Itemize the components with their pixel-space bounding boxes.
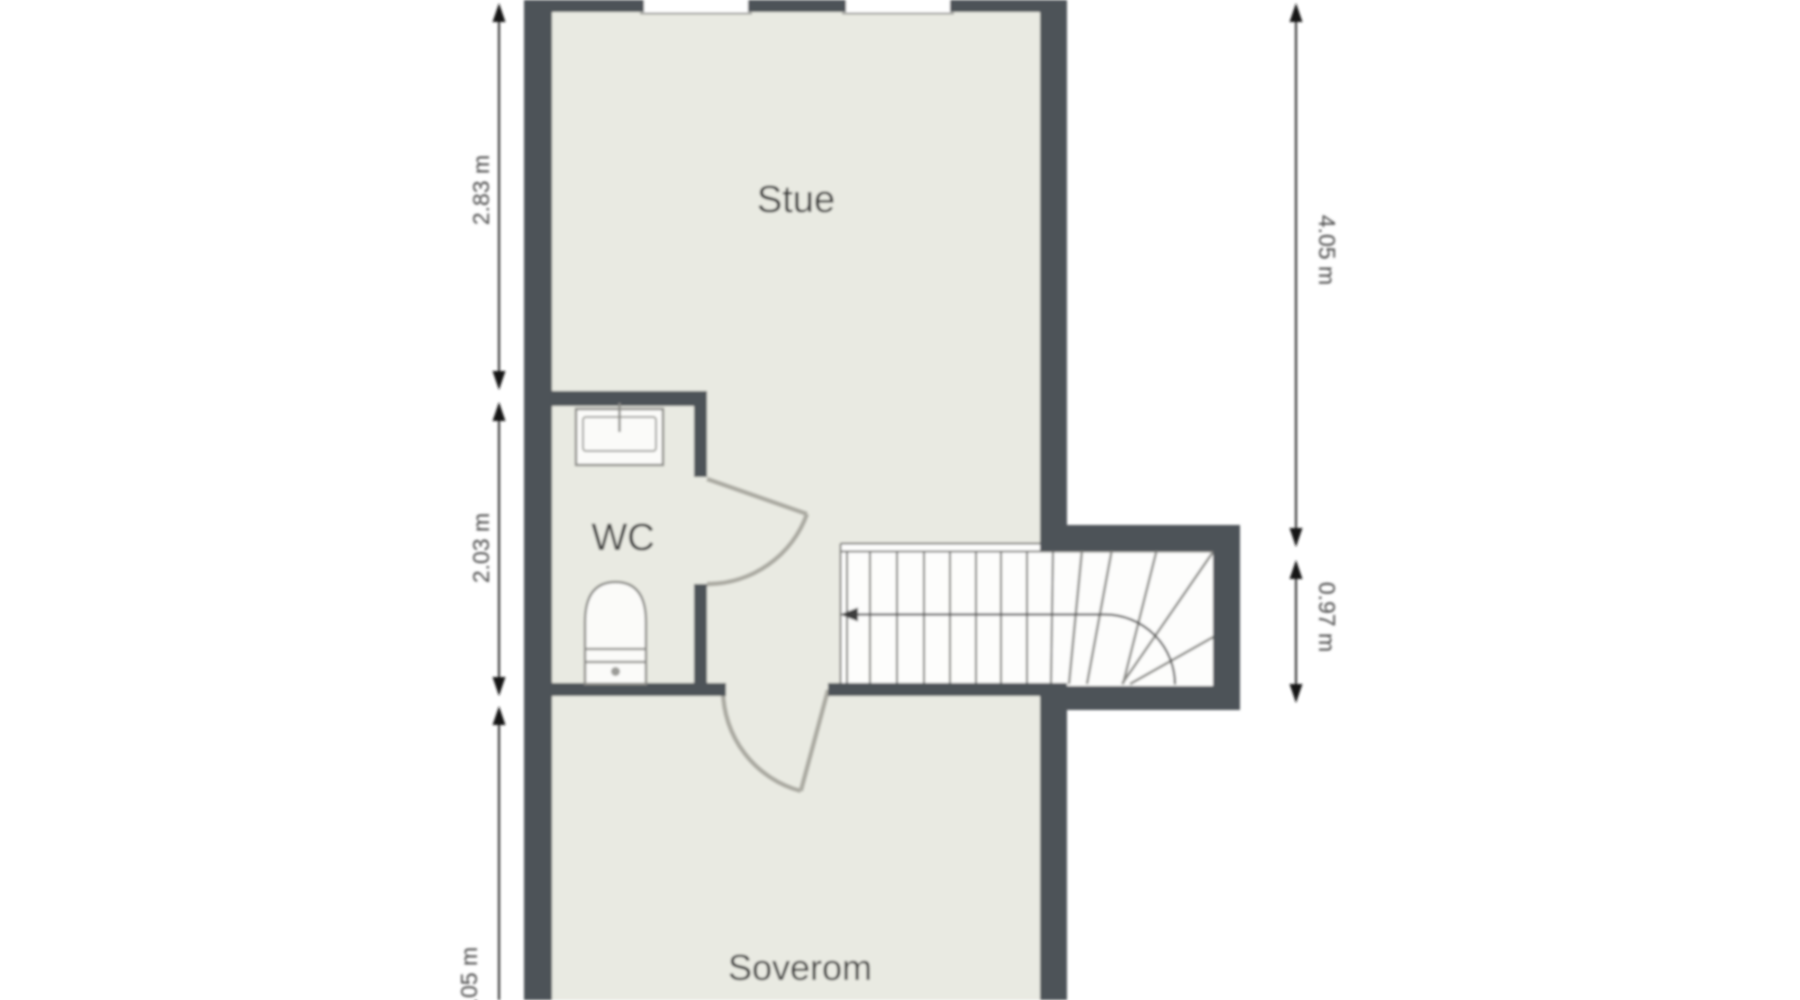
svg-text:3.05 m: 3.05 m [456, 947, 482, 1000]
svg-text:0.97 m: 0.97 m [1314, 582, 1340, 652]
svg-text:WC: WC [591, 517, 654, 559]
svg-text:Soverom: Soverom [728, 947, 872, 988]
svg-text:4.05 m: 4.05 m [1314, 215, 1340, 285]
svg-text:2.03 m: 2.03 m [468, 513, 494, 583]
svg-text:Stue: Stue [757, 179, 835, 221]
svg-text:2.83 m: 2.83 m [468, 155, 494, 225]
